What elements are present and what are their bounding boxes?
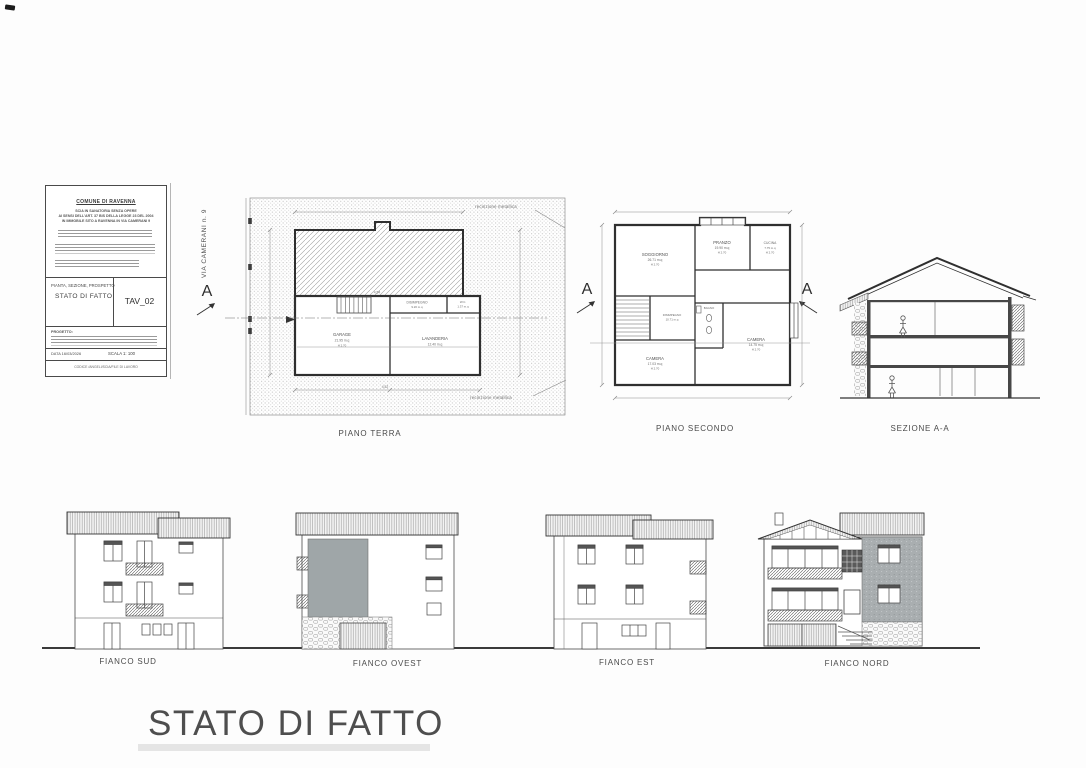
room-area: 9.20 m.q xyxy=(411,305,423,309)
title-block-comune: COMUNE DI RAVENNA xyxy=(46,199,166,205)
structure xyxy=(867,297,1012,398)
windows xyxy=(426,545,442,615)
garage-door xyxy=(340,623,386,649)
room-label: SOGGIORNO xyxy=(642,252,669,257)
room-height: H 2.70 xyxy=(651,367,660,371)
title-block-content-title: STATO DI FATTO xyxy=(55,293,112,300)
room-area: 1.37 m.q xyxy=(457,305,469,309)
title-block-tav-number: TAV_02 xyxy=(115,296,164,306)
room-area: 26.71 m.q xyxy=(648,258,663,262)
building-footprint xyxy=(286,222,480,375)
room-height: H 2.70 xyxy=(338,344,347,348)
piano-secondo-label: PIANO SECONDO xyxy=(645,424,745,433)
room-label: PRANZO xyxy=(713,240,731,245)
scan-artifact-band xyxy=(138,744,430,751)
fence-label-bottom: recinzione metallica xyxy=(470,395,512,400)
sezione-label: SEZIONE A-A xyxy=(880,424,960,433)
room-label: CUCINA xyxy=(764,241,777,245)
room-height: H 2.70 xyxy=(651,263,660,267)
roof-band xyxy=(158,518,230,538)
roof xyxy=(848,258,1036,300)
room-height: H 2.70 xyxy=(718,251,727,255)
roof-band xyxy=(633,520,713,539)
title-block-object-line: AI SENSI DELL'ART. 37 BIS DELLA LEGGE 23… xyxy=(46,214,166,218)
fianco-nord-label: FIANCO NORD xyxy=(824,659,890,668)
title-block: COMUNE DI RAVENNA SCIA IN SANATORIA SENZ… xyxy=(45,185,167,377)
room-area: 7.75 m.q xyxy=(764,246,776,250)
frame-line xyxy=(170,183,171,379)
title-block-divider xyxy=(46,277,166,278)
dimension-text: 4.54 xyxy=(374,291,381,295)
street-label: VIA CAMERANI n. 9 xyxy=(201,206,208,278)
stone-base xyxy=(862,622,922,646)
title-block-scale: SCALA 1: 100 xyxy=(108,351,135,356)
stone-pier xyxy=(854,303,866,396)
scan-artifact-mark xyxy=(5,4,16,10)
section-marker-letter: A xyxy=(194,284,220,300)
room-label: W.C. xyxy=(460,300,466,304)
fine-print-lines xyxy=(58,230,152,238)
room-area: 14.75 m.q xyxy=(749,343,764,347)
dimension-text: 4.52 xyxy=(382,385,389,389)
fianco-est-label: FIANCO EST xyxy=(596,658,658,667)
fine-print-lines xyxy=(55,260,139,267)
human-figure xyxy=(889,376,896,398)
title-block-object-line: IN IMMOBILE SITO A RAVENNA IN VIA CAMERA… xyxy=(46,219,166,223)
room-label: DISIMPEGNO xyxy=(406,301,428,305)
room-label: DISIMPEGNO xyxy=(663,313,682,317)
room-height: H 2.70 xyxy=(752,348,761,352)
room-area: 19.90 m.q xyxy=(715,246,730,250)
piano-terra-drawing: recinzione metallica recinzione metallic… xyxy=(225,190,575,425)
gray-wall-panel xyxy=(308,539,368,625)
section-arrow-icon xyxy=(195,301,219,317)
room-label: BAGNO xyxy=(704,306,715,310)
fianco-sud-label: FIANCO SUD xyxy=(98,657,158,666)
sheet: COMUNE DI RAVENNA SCIA IN SANATORIA SENZ… xyxy=(0,0,1086,768)
room-label: GARAGE xyxy=(333,332,351,337)
section-marker-a: A xyxy=(194,284,220,317)
title-block-divider xyxy=(46,360,166,361)
title-block-divider xyxy=(46,326,166,327)
chimney xyxy=(775,513,783,525)
room-area: 21.95 m.q xyxy=(335,339,350,343)
sheet-main-title: STATO DI FATTO xyxy=(148,704,444,744)
title-block-date: DATA 16/03/2026 xyxy=(51,351,81,356)
title-block-content-label: PIANTA, SEZIONE, PROSPETTO xyxy=(51,283,115,288)
room-label: CAMERA xyxy=(747,337,765,342)
stairs xyxy=(337,297,371,313)
fianco-ovest-drawing xyxy=(288,505,473,650)
room-area: 10.71 m.q xyxy=(666,318,679,322)
roof-band xyxy=(296,513,458,535)
room-area: 12.40 m.q xyxy=(428,343,443,347)
room-area: 17.03 m.q xyxy=(648,362,663,366)
room-label: CAMERA xyxy=(646,356,664,361)
room-height: H 2.70 xyxy=(766,251,775,255)
fianco-est-drawing xyxy=(538,505,723,650)
piano-terra-label: PIANO TERRA xyxy=(325,429,415,438)
fianco-ovest-label: FIANCO OVEST xyxy=(350,659,425,668)
interior-lines xyxy=(935,302,975,396)
title-block-object-line: SCIA IN SANATORIA SENZA OPERE xyxy=(46,209,166,213)
title-block-progetto-label: PROGETTO: xyxy=(51,330,73,334)
piano-secondo-drawing: SOGGIORNO 26.71 m.q H 2.70 PRANZO 19.90 … xyxy=(590,208,810,408)
roof-band xyxy=(840,513,924,535)
human-figure xyxy=(900,316,907,338)
fence-label-top: recinzione metallica xyxy=(475,204,517,209)
sezione-drawing xyxy=(840,243,1040,408)
fine-print-lines xyxy=(55,244,155,254)
fianco-sud-drawing xyxy=(60,505,310,650)
fine-print-lines xyxy=(51,336,157,346)
room-label: LAVANDERIA xyxy=(422,336,448,341)
fianco-nord-drawing xyxy=(758,498,973,650)
title-block-code-line: CODICE /ANGELI/SCIA/FILE DI LAVORO xyxy=(46,365,166,369)
title-block-divider xyxy=(46,348,166,349)
